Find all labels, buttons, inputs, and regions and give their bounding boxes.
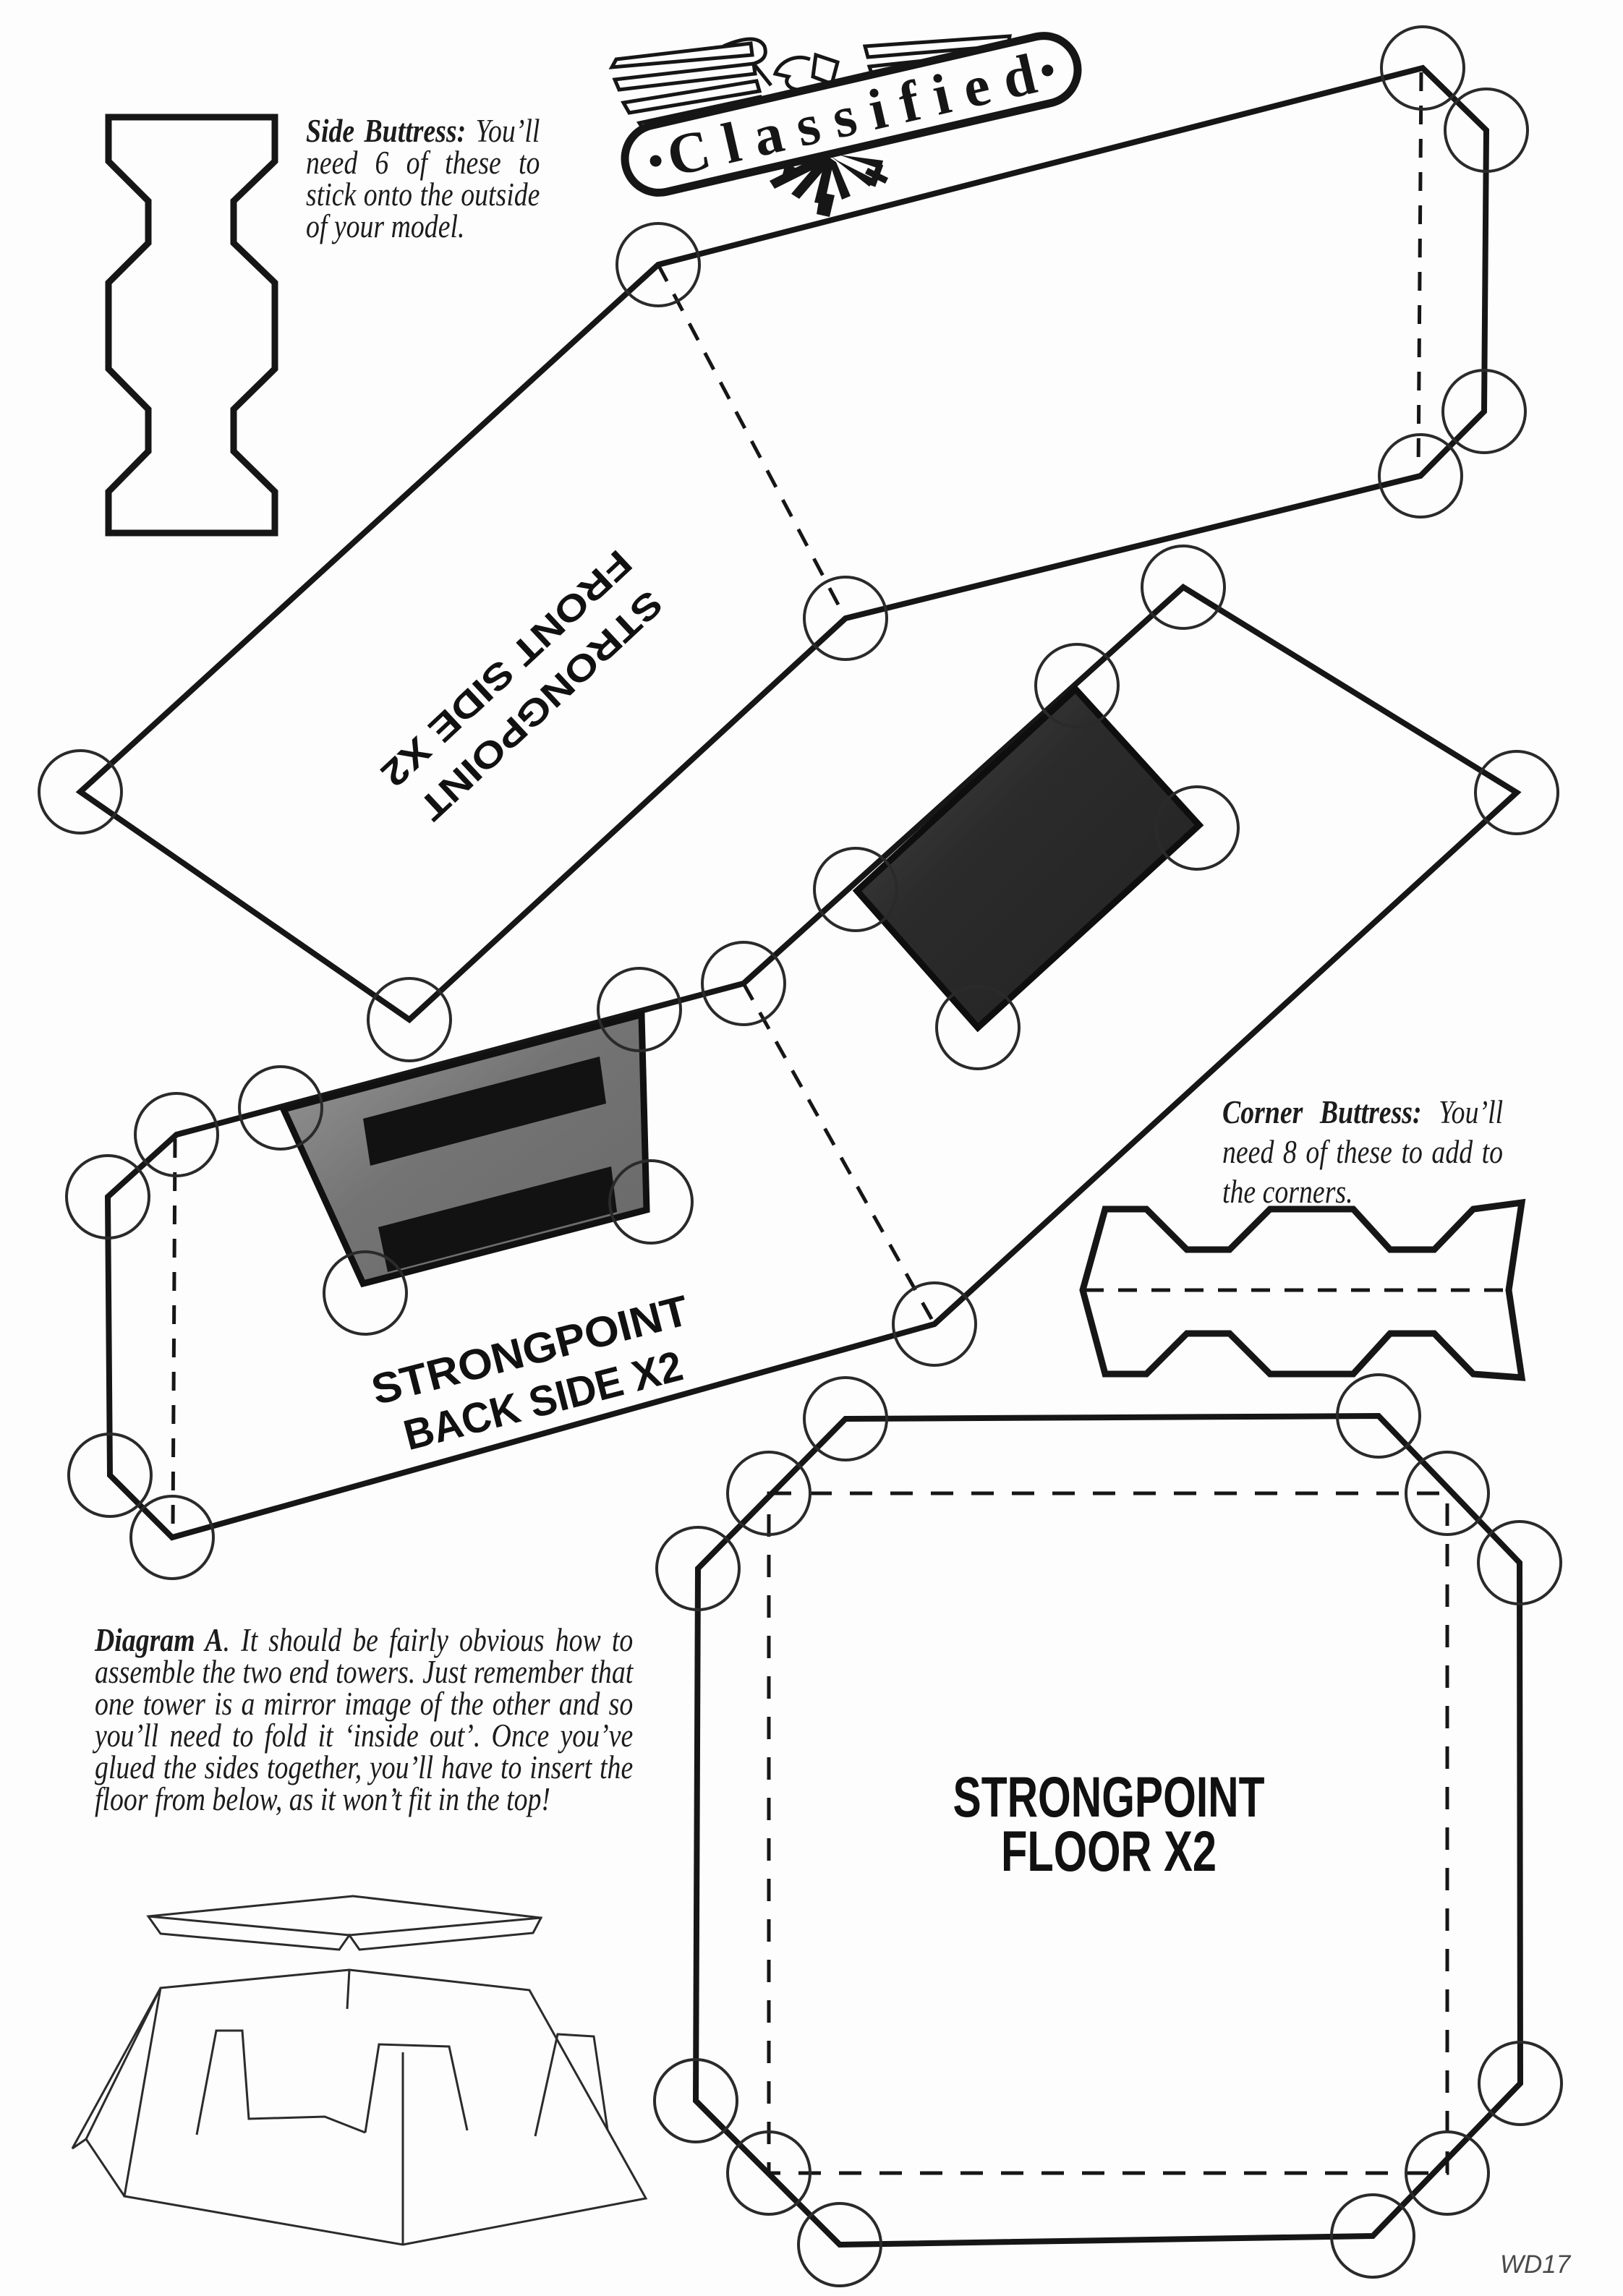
svg-text:WD17: WD17 [1500, 2250, 1572, 2279]
svg-text:FLOOR X2: FLOOR X2 [1001, 1819, 1217, 1883]
